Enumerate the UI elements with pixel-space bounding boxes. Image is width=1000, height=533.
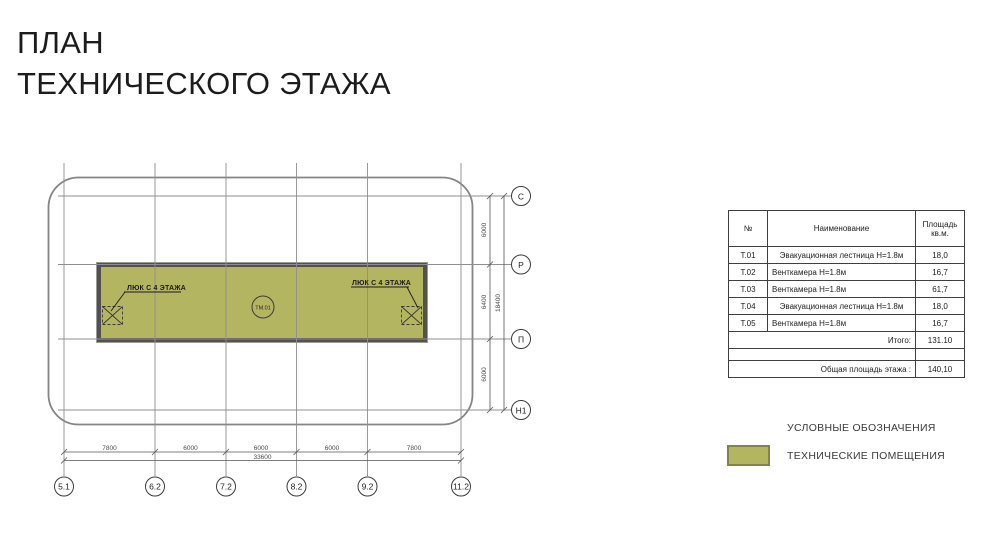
cell-num: Т.02	[729, 264, 768, 281]
table-row: Т.02 Венткамера Н=1.8м 16,7	[729, 264, 965, 281]
table-row: Т.05 Венткамера Н=1.8м 16,7	[729, 315, 965, 332]
tech-zone	[99, 265, 425, 340]
hatch-label-right: ЛЮК С 4 ЭТАЖА	[352, 280, 411, 287]
room-tag-label: ТМ.01	[255, 306, 271, 312]
page: ПЛАН ТЕХНИЧЕСКОГО ЭТАЖА	[0, 0, 1000, 533]
legend-swatch-tech-rooms	[727, 445, 770, 466]
total-row: Итого: 131.10	[729, 332, 965, 349]
dim-bottom-2: 6000	[254, 445, 269, 452]
header-name: Наименование	[768, 211, 916, 247]
hatch-label-left: ЛЮК С 4 ЭТАЖА	[127, 285, 186, 292]
header-area-line1: Площадь	[920, 220, 960, 229]
axis-right-3: Н1	[516, 406, 527, 416]
total-value: 131.10	[916, 332, 965, 349]
dim-bottom-4: 7800	[407, 445, 422, 452]
dim-bottom-0: 7800	[102, 445, 117, 452]
cell-name: Венткамера Н=1.8м	[768, 264, 916, 281]
axis-right-0: С	[518, 192, 524, 202]
dim-bottom-total: 33600	[253, 454, 271, 461]
right-axis-bubbles: С Р П Н1	[512, 187, 531, 420]
legend-title: УСЛОВНЫЕ ОБОЗНАЧЕНИЯ	[787, 422, 936, 434]
bottom-axis-bubbles: 5.1 6.2 7.2 8.2 9.2 11.2	[55, 477, 471, 496]
dim-right-total: 18400	[495, 294, 502, 312]
cell-name: Эвакуационная лестница Н=1.8м	[768, 298, 916, 315]
axis-bottom-2: 7.2	[220, 482, 232, 492]
cell-area: 16,7	[916, 264, 965, 281]
cell-name: Венткамера Н=1.8м	[768, 281, 916, 298]
axis-bottom-4: 9.2	[362, 482, 374, 492]
cell-num: Т.01	[729, 247, 768, 264]
dim-right-0: 6000	[481, 222, 488, 237]
axis-bottom-3: 8.2	[291, 482, 303, 492]
table-row: Т.01 Эвакуационная лестница Н=1.8м 18,0	[729, 247, 965, 264]
axis-right-1: Р	[518, 260, 524, 270]
spacer-cell	[916, 349, 965, 361]
header-num: №	[729, 211, 768, 247]
legend-item-label: ТЕХНИЧЕСКИЕ ПОМЕЩЕНИЯ	[787, 450, 945, 462]
axis-bottom-5: 11.2	[453, 482, 469, 492]
cell-num: Т.03	[729, 281, 768, 298]
cell-area: 61,7	[916, 281, 965, 298]
cell-num: Т.04	[729, 298, 768, 315]
axis-bottom-1: 6.2	[149, 482, 161, 492]
overall-row: Общая площадь этажа : 140,10	[729, 361, 965, 378]
cell-area: 18,0	[916, 298, 965, 315]
cell-area: 16,7	[916, 315, 965, 332]
total-label: Итого:	[729, 332, 916, 349]
dim-right-2: 6000	[481, 367, 488, 382]
overall-value: 140,10	[916, 361, 965, 378]
header-area-line2: кв.м.	[920, 229, 960, 238]
cell-name: Эвакуационная лестница Н=1.8м	[768, 247, 916, 264]
rooms-table: № Наименование Площадь кв.м. Т.01 Эвакуа…	[728, 210, 965, 378]
axis-right-2: П	[518, 335, 524, 345]
table-row: Т.03 Венткамера Н=1.8м 61,7	[729, 281, 965, 298]
dim-bottom-3: 6000	[325, 445, 340, 452]
cell-name: Венткамера Н=1.8м	[768, 315, 916, 332]
rooms-table-header: № Наименование Площадь кв.м.	[729, 211, 965, 247]
header-area: Площадь кв.м.	[916, 211, 965, 247]
dim-bottom-1: 6000	[183, 445, 198, 452]
cell-num: Т.05	[729, 315, 768, 332]
dim-right-1: 6400	[481, 294, 488, 309]
spacer-cell	[729, 349, 916, 361]
axis-bottom-0: 5.1	[58, 482, 70, 492]
spacer-row	[729, 349, 965, 361]
overall-label: Общая площадь этажа :	[729, 361, 916, 378]
table-row: Т.04 Эвакуационная лестница Н=1.8м 18,0	[729, 298, 965, 315]
cell-area: 18,0	[916, 247, 965, 264]
